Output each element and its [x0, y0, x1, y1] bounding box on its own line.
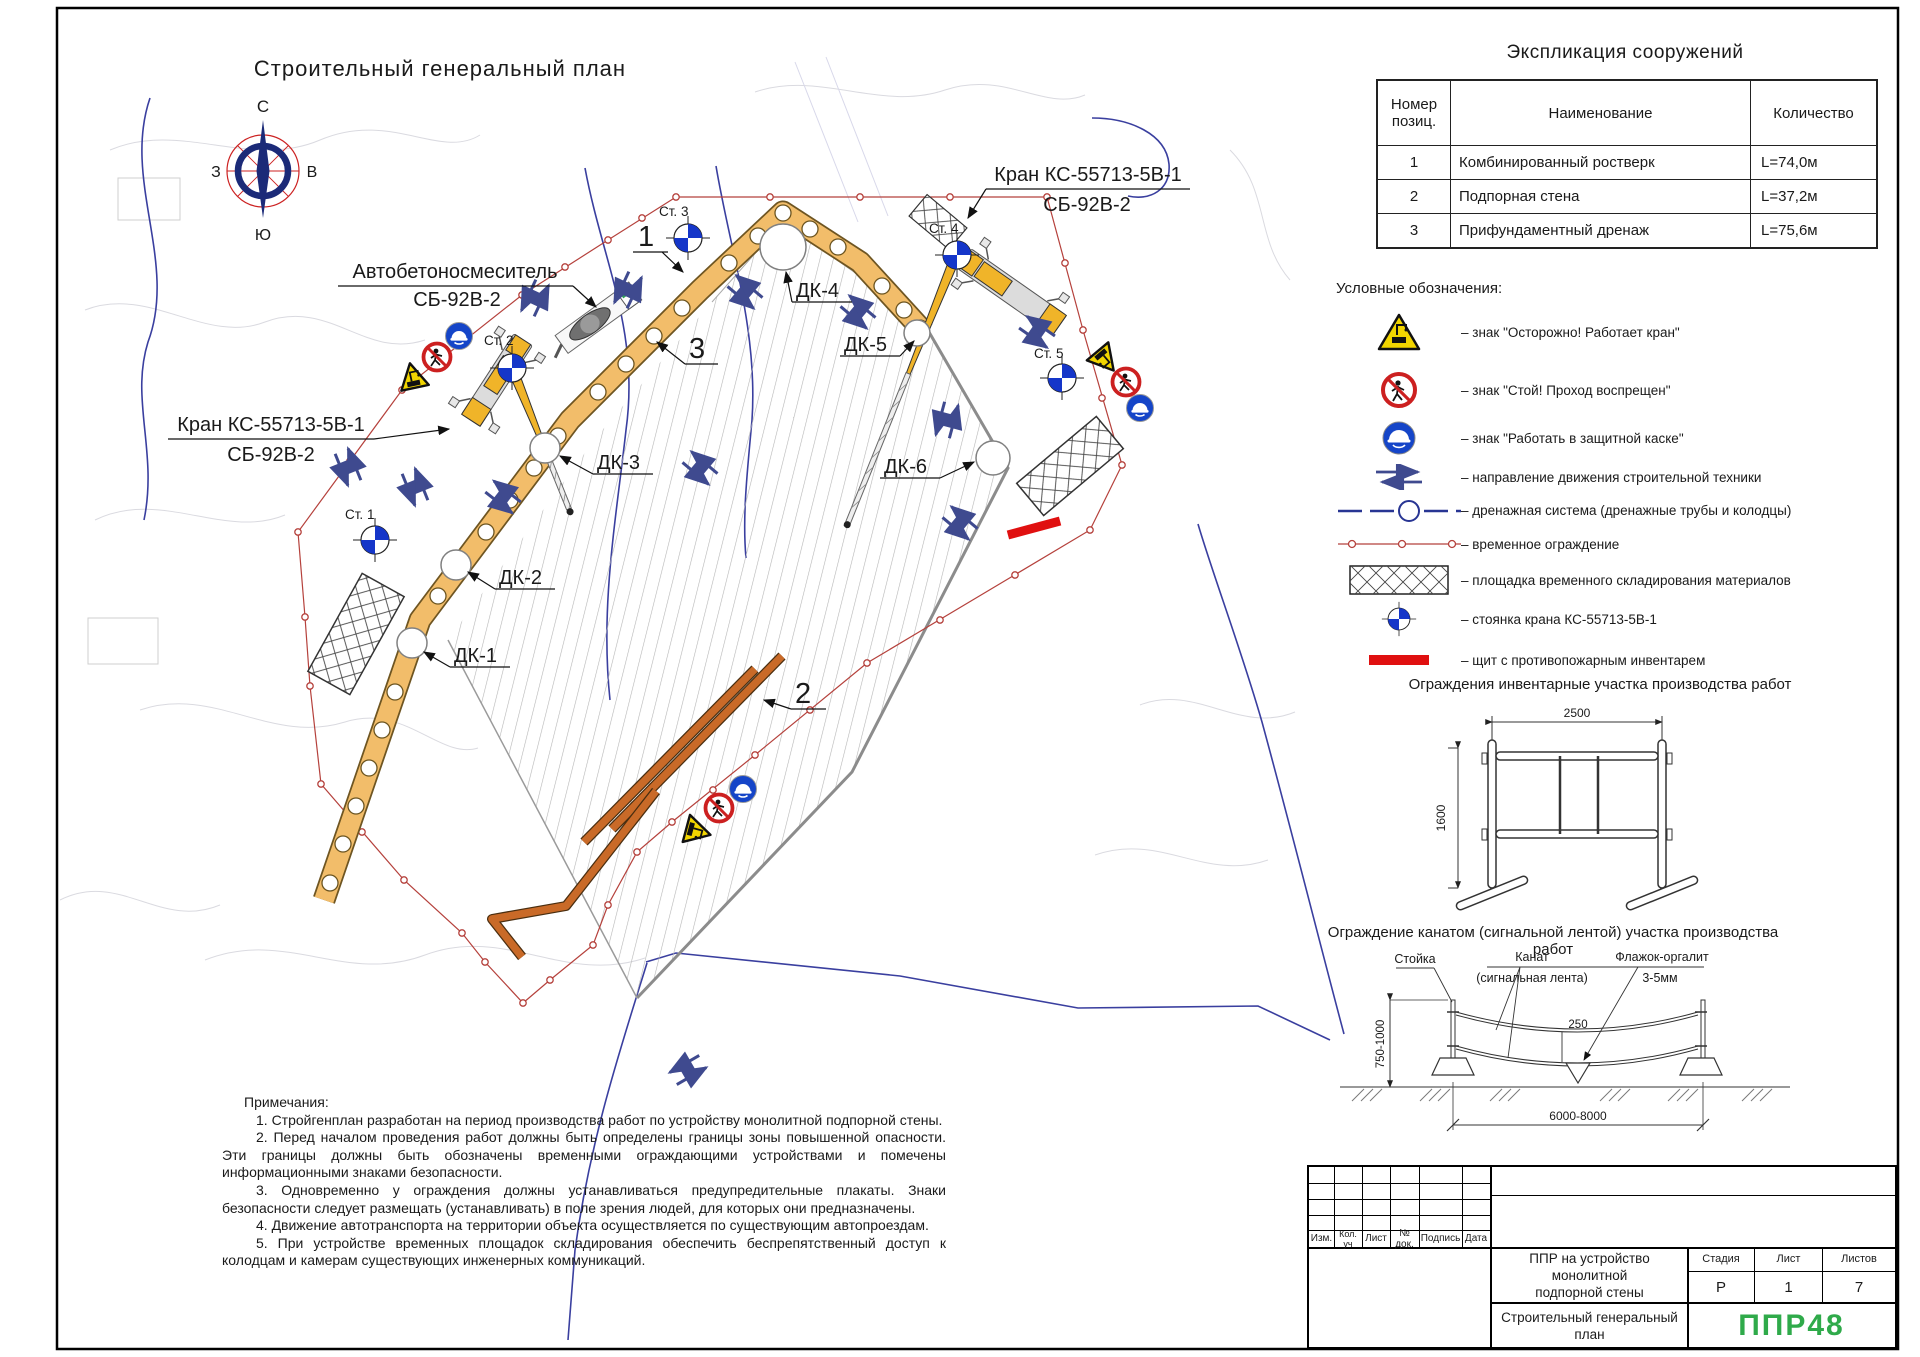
note-item: 5. При устройстве временных площадок скл… [222, 1235, 946, 1270]
inventory-fence-title: Ограждения инвентарные участка производс… [1340, 676, 1860, 693]
legend-item: – щит с противопожарным инвентарем [1336, 639, 1876, 681]
table-cell: 2 [1378, 179, 1450, 213]
tb-drawing-name: Строительный генеральныйплан [1492, 1304, 1687, 1347]
tb-sheet-value: 1 [1755, 1272, 1822, 1302]
legend: – знак "Осторожно! Работает кран" – знак… [1336, 300, 1876, 681]
fence1-width-dim: 2500 [1564, 706, 1591, 720]
explication-table: Номерпозиц. Наименование Количество 1 Ко… [1376, 79, 1878, 249]
tb-col-doc: № док. [1390, 1230, 1419, 1247]
table-cell: L=37,2м [1750, 179, 1876, 213]
tb-col-kol: Кол. уч [1334, 1230, 1362, 1247]
crane-stand-icon [1336, 596, 1461, 642]
compass-west: З [211, 164, 221, 181]
tb-col-sign: Подпись [1419, 1230, 1462, 1247]
tb-col-izm: Изм. [1309, 1230, 1334, 1247]
direction-arrows-icon [1336, 464, 1461, 490]
table-cell: Прифундаментный дренаж [1450, 213, 1750, 247]
rope-fence-title: Ограждение канатом (сигнальной лентой) у… [1312, 924, 1794, 958]
rope-fence-detail: 250 Стойка Канат (сигнальная лента) Флаж… [1340, 950, 1790, 1131]
legend-item: – временное ограждение [1336, 527, 1876, 561]
compass-east: В [307, 164, 318, 181]
position-number: 3 [689, 333, 705, 365]
crane-right-label-line1: Кран КС-55713-5В-1 [994, 164, 1182, 186]
tb-stage-value: Р [1688, 1272, 1754, 1302]
legend-label: – дренажная система (дренажные трубы и к… [1461, 503, 1791, 518]
span-dim: 6000-8000 [1549, 1109, 1607, 1123]
note-item: 3. Одновременно у ограждения должны уста… [222, 1182, 946, 1217]
note-item: 2. Перед началом проведения работ должны… [222, 1129, 946, 1182]
crane-right-label-line2: СБ-92В-2 [1043, 194, 1131, 216]
legend-label: – площадка временного складирования мате… [1461, 573, 1791, 588]
legend-item: – знак "Работать в защитной каске" [1336, 416, 1876, 460]
plan-title: Строительный генеральный план [254, 56, 626, 81]
position-number: 2 [795, 678, 811, 710]
table-cell: 1 [1378, 145, 1450, 179]
tb-sheet-header: Лист [1755, 1247, 1822, 1271]
temporary-fence-icon [1336, 537, 1461, 551]
title-block: Изм. Кол. уч Лист № док. Подпись Дата ПП… [1307, 1165, 1897, 1349]
explication-title: Экспликация сооружений [1376, 42, 1874, 64]
tb-sheets-value: 7 [1823, 1272, 1895, 1302]
col-header-name: Наименование [1450, 81, 1750, 145]
station-label: Ст. 5 [1034, 346, 1063, 361]
legend-label: – временное ограждение [1461, 537, 1619, 552]
drawing-sheet: Строительный генеральный план Кран КС-55… [0, 0, 1920, 1357]
legend-item: – направление движения строительной техн… [1336, 460, 1876, 494]
well-label: ДК-5 [844, 334, 887, 356]
legend-label: – направление движения строительной техн… [1461, 470, 1761, 485]
legend-label: – знак "Стой! Проход воспрещен" [1461, 383, 1671, 398]
fire-shield-icon [1336, 652, 1461, 668]
flag-dim: 250 [1568, 1019, 1587, 1031]
note-item: 1. Стройгенплан разработан на период про… [222, 1112, 946, 1130]
flag-label-line2: 3-5мм [1642, 971, 1677, 985]
mixer-label-line1: Автобетоносмеситель [352, 261, 557, 283]
well-label: ДК-4 [796, 280, 839, 302]
position-number: 1 [638, 221, 654, 253]
well-label: ДК-3 [597, 452, 640, 474]
legend-label: – знак "Работать в защитной каске" [1461, 431, 1684, 446]
table-cell: L=75,6м [1750, 213, 1876, 247]
legend-label: – стоянка крана КС-55713-5В-1 [1461, 612, 1657, 627]
station-label: Ст. 2 [484, 333, 513, 348]
inventory-fence-detail: 2500 1600 [1434, 706, 1699, 911]
tb-col-date: Дата [1462, 1230, 1490, 1247]
well-label: ДК-6 [884, 456, 927, 478]
rope-height-dim: 750-1000 [1375, 1020, 1387, 1069]
tb-doc-name: ППР на устройство монолитнойподпорной ст… [1492, 1249, 1687, 1302]
crane-left-label-line1: Кран КС-55713-5В-1 [177, 414, 365, 436]
station-label: Ст. 3 [659, 204, 688, 219]
tb-sheets-header: Листов [1823, 1247, 1895, 1271]
drainage-line-icon [1336, 499, 1461, 523]
compass-south: Ю [255, 227, 271, 244]
legend-item: – знак "Стой! Проход воспрещен" [1336, 364, 1876, 416]
rope-label-line2: (сигнальная лента) [1476, 971, 1588, 985]
fence1-height-dim: 1600 [1434, 804, 1448, 831]
crane-left-label-line2: СБ-92В-2 [227, 444, 315, 466]
compass-north: С [257, 97, 269, 116]
table-cell: L=74,0м [1750, 145, 1876, 179]
company-logo: ППР48 [1688, 1304, 1895, 1347]
tb-col-list: Лист [1362, 1230, 1390, 1247]
tb-stage-header: Стадия [1688, 1247, 1754, 1271]
fire-shield [1007, 517, 1061, 540]
legend-item: – площадка временного складирования мате… [1336, 561, 1876, 599]
legend-item: – знак "Осторожно! Работает кран" [1336, 300, 1876, 364]
legend-title: Условные обозначения: [1336, 280, 1502, 297]
notes-block: Примечания: 1. Стройгенплан разработан н… [222, 1094, 946, 1270]
no-pedestrians-sign-icon [1336, 370, 1461, 410]
station-label: Ст. 1 [345, 507, 374, 522]
table-cell: Подпорная стена [1450, 179, 1750, 213]
station-label: Ст. 4 [929, 221, 959, 236]
hard-hat-sign-icon [1336, 418, 1461, 458]
well-label: ДК-1 [454, 645, 497, 667]
crane-warning-sign-icon [1336, 312, 1461, 352]
storage-area-icon [1336, 564, 1461, 596]
notes-title: Примечания: [244, 1094, 946, 1112]
col-header-number: Номерпозиц. [1378, 81, 1450, 145]
legend-item: – дренажная система (дренажные трубы и к… [1336, 494, 1876, 527]
mixer-label-line2: СБ-92В-2 [413, 289, 501, 311]
col-header-qty: Количество [1750, 81, 1876, 145]
table-cell: Комбинированный ростверк [1450, 145, 1750, 179]
well-label: ДК-2 [499, 567, 542, 589]
legend-label: – щит с противопожарным инвентарем [1461, 653, 1705, 668]
note-item: 4. Движение автотранспорта на территории… [222, 1217, 946, 1235]
compass-rose: С Ю З В [211, 97, 317, 244]
legend-item: – стоянка крана КС-55713-5В-1 [1336, 599, 1876, 639]
table-cell: 3 [1378, 213, 1450, 247]
legend-label: – знак "Осторожно! Работает кран" [1461, 325, 1680, 340]
